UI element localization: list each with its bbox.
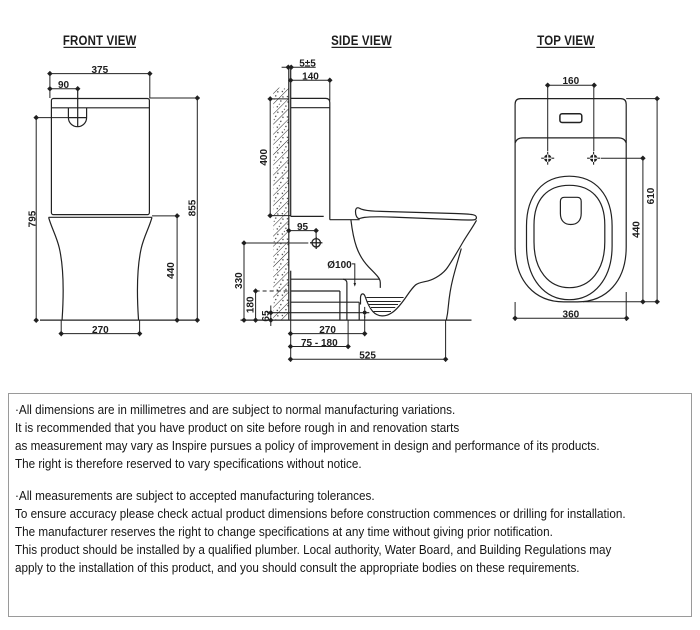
svg-text:180: 180 (245, 296, 256, 313)
svg-text:375: 375 (91, 65, 108, 76)
svg-text:610: 610 (646, 187, 657, 204)
svg-text:SIDE VIEW: SIDE VIEW (331, 33, 392, 48)
svg-text:160: 160 (562, 76, 579, 87)
svg-text:855: 855 (188, 199, 199, 216)
svg-text:95: 95 (297, 222, 309, 233)
svg-text:75 - 180: 75 - 180 (301, 338, 338, 349)
svg-text:400: 400 (259, 149, 270, 166)
svg-text:5±5: 5±5 (299, 58, 316, 69)
svg-text:90: 90 (58, 80, 70, 91)
svg-text:Ø100: Ø100 (327, 260, 352, 271)
svg-text:FRONT VIEW: FRONT VIEW (63, 33, 137, 48)
svg-text:65: 65 (261, 310, 272, 322)
svg-text:360: 360 (563, 309, 580, 320)
svg-text:270: 270 (319, 325, 336, 336)
svg-text:TOP VIEW: TOP VIEW (537, 33, 594, 48)
svg-text:330: 330 (234, 272, 245, 289)
svg-text:440: 440 (166, 262, 177, 279)
svg-text:140: 140 (302, 72, 319, 83)
svg-text:525: 525 (359, 351, 376, 362)
svg-text:440: 440 (632, 221, 643, 238)
svg-text:270: 270 (92, 325, 109, 336)
svg-text:795: 795 (27, 210, 38, 227)
